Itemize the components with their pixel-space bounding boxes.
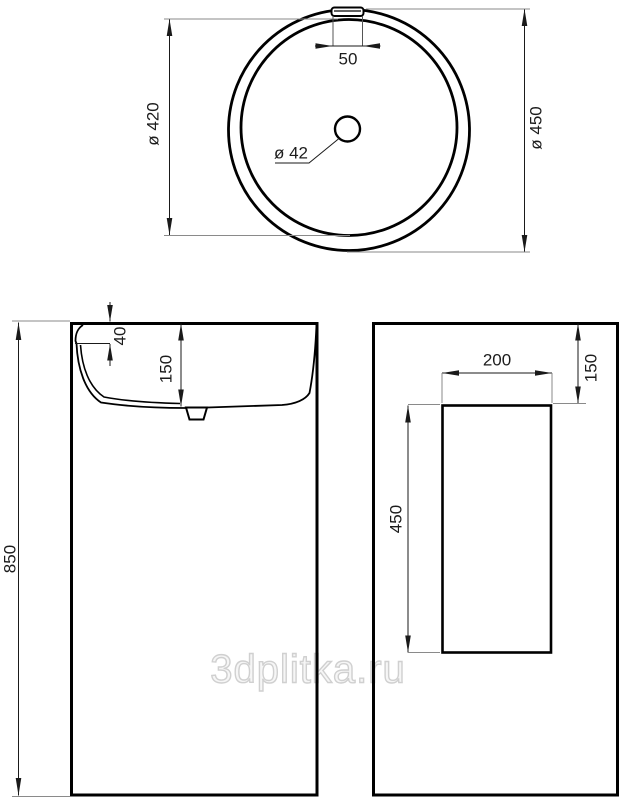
basin-inner-circle <box>241 20 457 236</box>
overflow-notch <box>332 8 364 17</box>
basin-left-wall <box>76 325 186 408</box>
side-body-outline <box>374 324 618 796</box>
drain-hole-circle <box>335 117 360 142</box>
basin-right-wall <box>208 325 317 408</box>
basin-left-wall-inner <box>81 345 181 404</box>
front-view-dimensions <box>12 302 184 797</box>
front-view <box>72 324 318 796</box>
drawing-linework <box>0 0 622 800</box>
side-view <box>374 324 618 796</box>
top-view <box>229 8 470 251</box>
technical-drawing-page: 3dplitka.ru <box>0 0 622 800</box>
basin-drain-front <box>186 408 207 420</box>
side-recess-outline <box>443 406 552 653</box>
side-view-dimensions <box>405 324 586 653</box>
front-body-outline <box>72 324 318 796</box>
top-view-dimensions <box>164 9 530 252</box>
